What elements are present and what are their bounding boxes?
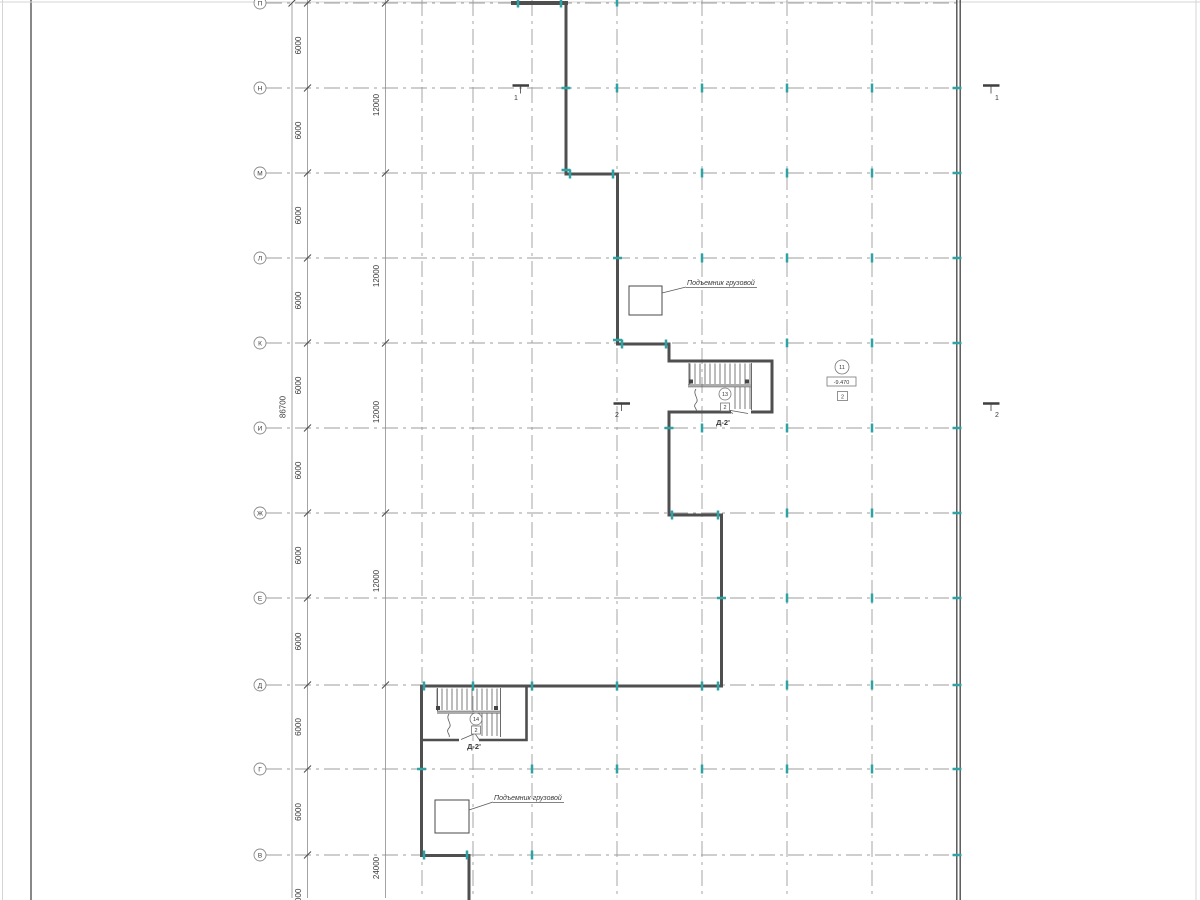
column-tick xyxy=(953,427,962,430)
dimension-text: 12000 xyxy=(372,93,381,116)
column-tick xyxy=(717,597,726,600)
axis-label: К xyxy=(258,340,262,347)
column-tick xyxy=(953,172,962,175)
door-number: 2 xyxy=(723,405,726,411)
column-tick xyxy=(871,681,874,690)
dimension-text: 6000 xyxy=(294,376,303,394)
dimension-text: 6000 xyxy=(294,632,303,650)
page-frame xyxy=(0,0,1200,900)
hoist-shaft-box xyxy=(629,286,662,315)
dimension-layer: 6000600060006000600060006000600060006000… xyxy=(279,0,390,900)
column-tick xyxy=(786,509,789,518)
column-tick xyxy=(671,511,674,520)
dimension-text: 6000 xyxy=(294,888,303,900)
column-tick xyxy=(701,765,704,774)
door-swing-line xyxy=(475,734,479,740)
dimension-text: 12000 xyxy=(372,569,381,592)
column-tick xyxy=(786,254,789,263)
axis-label: Ж xyxy=(257,510,263,517)
column-tick xyxy=(953,684,962,687)
column-tick xyxy=(953,768,962,771)
column-tick xyxy=(621,340,624,349)
axis-label: Г xyxy=(258,766,262,773)
column-tick xyxy=(786,424,789,433)
dimension-text: 6000 xyxy=(294,803,303,821)
section-number: 1 xyxy=(514,95,518,102)
wall-outline xyxy=(422,412,732,900)
node-number: 11 xyxy=(839,365,845,371)
column-tick xyxy=(786,681,789,690)
floor-plan-canvas: ПНМЛКИЖЕДГВ 6000600060006000600060006000… xyxy=(0,0,1200,900)
level-mark: -9.470 xyxy=(834,380,850,386)
column-tick xyxy=(786,765,789,774)
column-tick xyxy=(953,597,962,600)
hoist-shaft-box xyxy=(435,800,469,833)
dimension-text: 6000 xyxy=(294,36,303,54)
dimension-text: 6000 xyxy=(294,546,303,564)
column-tick-layer xyxy=(417,0,962,860)
annotation-layer: 11-9.4702 xyxy=(827,360,856,401)
dimension-text: 24000 xyxy=(372,856,381,879)
hoist-label: Подъемник грузовой xyxy=(687,279,755,287)
section-number: 2 xyxy=(615,412,619,419)
column-tick xyxy=(531,682,534,691)
axis-label: Л xyxy=(258,255,262,262)
column-tick xyxy=(953,854,962,857)
stair-break-line xyxy=(448,714,451,737)
column-tick xyxy=(701,682,704,691)
stair-number: 13 xyxy=(722,392,728,398)
axis-label: Н xyxy=(258,85,263,92)
column-tick xyxy=(616,0,619,7)
column-tick xyxy=(616,682,619,691)
dimension-text: 6000 xyxy=(294,291,303,309)
stair-label: Д-2' xyxy=(467,742,481,751)
column-tick xyxy=(665,427,674,430)
column-tick xyxy=(531,851,534,860)
stair-post xyxy=(436,706,440,710)
column-tick xyxy=(786,594,789,603)
stair-layer: 132Д-2'142Д-2' xyxy=(436,363,752,751)
column-tick xyxy=(871,509,874,518)
column-tick xyxy=(423,682,426,691)
dimension-text: 6000 xyxy=(294,121,303,139)
stair-break-line xyxy=(695,389,698,411)
column-tick xyxy=(423,851,426,860)
column-tick xyxy=(786,84,789,93)
stair-number: 14 xyxy=(473,717,479,723)
column-tick xyxy=(953,87,962,90)
section-number: 1 xyxy=(995,95,999,102)
hoist-label: Подъемник грузовой xyxy=(494,794,562,802)
column-tick xyxy=(616,765,619,774)
column-tick xyxy=(871,84,874,93)
column-tick xyxy=(665,340,668,349)
column-tick xyxy=(871,254,874,263)
column-tick xyxy=(786,169,789,178)
section-number: 2 xyxy=(995,412,999,419)
dimension-text: 6000 xyxy=(294,718,303,736)
dimension-text: 6000 xyxy=(294,461,303,479)
column-tick xyxy=(613,257,622,260)
column-tick xyxy=(871,169,874,178)
axis-grid-layer: ПНМЛКИЖЕДГВ xyxy=(254,0,958,898)
dimension-text: 12000 xyxy=(372,400,381,423)
hoist-leader-line xyxy=(662,287,686,293)
column-tick xyxy=(701,254,704,263)
axis-label: В xyxy=(258,852,262,859)
column-tick xyxy=(871,765,874,774)
axis-label: М xyxy=(257,170,262,177)
stair-post xyxy=(745,380,749,384)
column-tick xyxy=(701,424,704,433)
wall-outline xyxy=(566,1,772,412)
column-tick xyxy=(612,170,615,179)
column-tick xyxy=(953,342,962,345)
stair-label: Д-2' xyxy=(716,418,730,427)
door-number: 2 xyxy=(474,728,477,734)
section-mark-layer: 1122 xyxy=(513,86,1000,420)
dimension-text: 12000 xyxy=(372,264,381,287)
dimension-text: 86700 xyxy=(279,395,288,418)
floor-plan-drawing: ПНМЛКИЖЕДГВ 6000600060006000600060006000… xyxy=(0,0,1200,900)
column-tick xyxy=(786,339,789,348)
column-tick xyxy=(701,84,704,93)
column-tick xyxy=(871,339,874,348)
column-tick xyxy=(569,170,572,179)
node-box-number: 2 xyxy=(841,395,844,401)
column-tick xyxy=(953,257,962,260)
column-tick xyxy=(417,768,426,771)
axis-label: Д xyxy=(258,682,263,689)
stair-post xyxy=(689,380,693,384)
column-tick xyxy=(717,511,720,520)
column-tick xyxy=(517,0,520,8)
stair-post xyxy=(494,706,498,710)
column-tick xyxy=(871,594,874,603)
axis-label: П xyxy=(258,0,263,7)
column-tick xyxy=(701,169,704,178)
column-tick xyxy=(953,512,962,515)
column-tick xyxy=(466,851,469,860)
axis-label: Е xyxy=(258,595,263,602)
column-tick xyxy=(562,87,571,90)
column-tick xyxy=(613,339,622,342)
column-tick xyxy=(616,84,619,93)
dimension-text: 6000 xyxy=(294,206,303,224)
wall-layer xyxy=(422,0,961,900)
axis-label: И xyxy=(258,425,263,432)
column-tick xyxy=(871,424,874,433)
column-tick xyxy=(531,765,534,774)
column-tick xyxy=(560,0,563,8)
column-tick xyxy=(717,682,720,691)
